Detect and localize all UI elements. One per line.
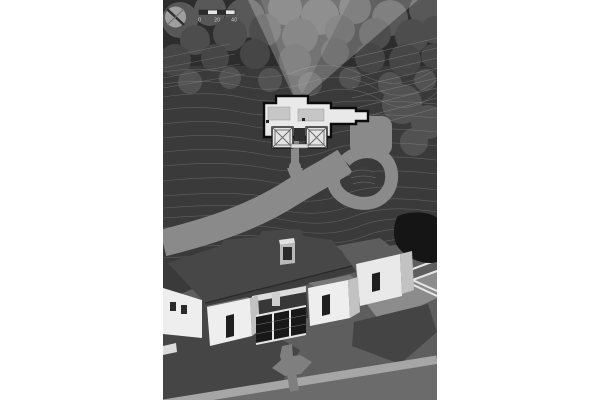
chimney [279,238,295,265]
pavilion-door [322,294,330,316]
pavilion-door [226,314,234,338]
window [170,302,176,311]
scale-tick-20: 20 [214,18,220,24]
north-arrow-icon [165,6,187,28]
site-rendering: 0 20 40 [0,0,600,400]
window [181,305,187,314]
scale-tick-0: 0 [198,18,201,24]
chimney-vent [283,247,292,260]
scale-tick-40: 40 [231,18,237,24]
court-chimney [272,292,280,306]
plan-entry-porch [294,128,305,141]
wing-door [372,272,380,292]
page: 0 20 40 [0,0,600,400]
plan-entry-steps [291,144,308,148]
